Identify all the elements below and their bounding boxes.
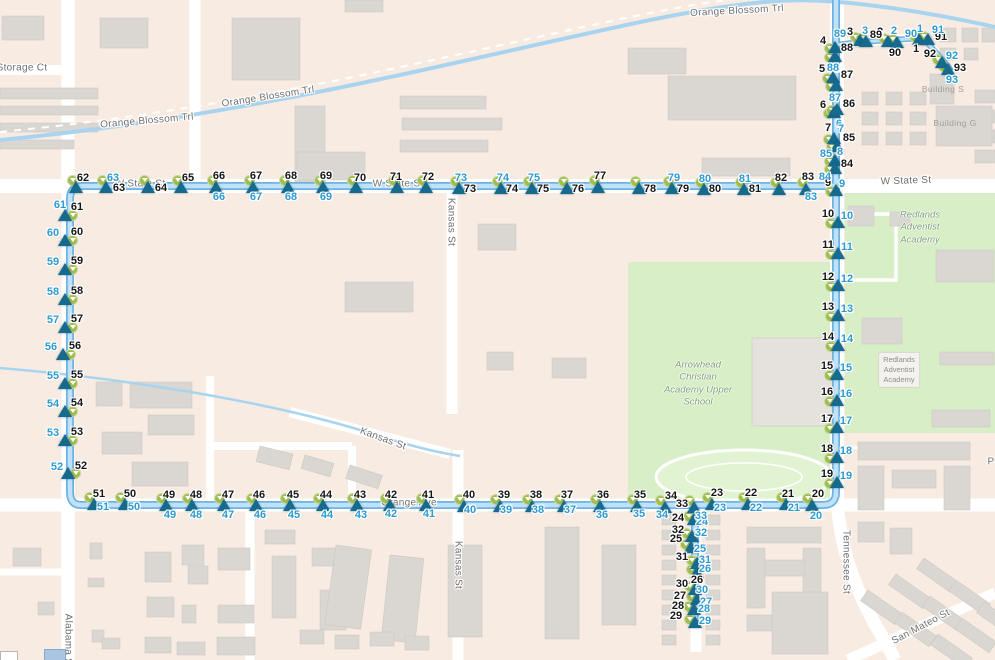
map-ui-fragment[interactable] bbox=[44, 649, 66, 660]
ui-layer bbox=[0, 0, 995, 660]
map-ui-fragment[interactable] bbox=[0, 651, 18, 660]
map-canvas[interactable]: Storage CtOrange Blossom TrlOrange Bloss… bbox=[0, 0, 995, 660]
